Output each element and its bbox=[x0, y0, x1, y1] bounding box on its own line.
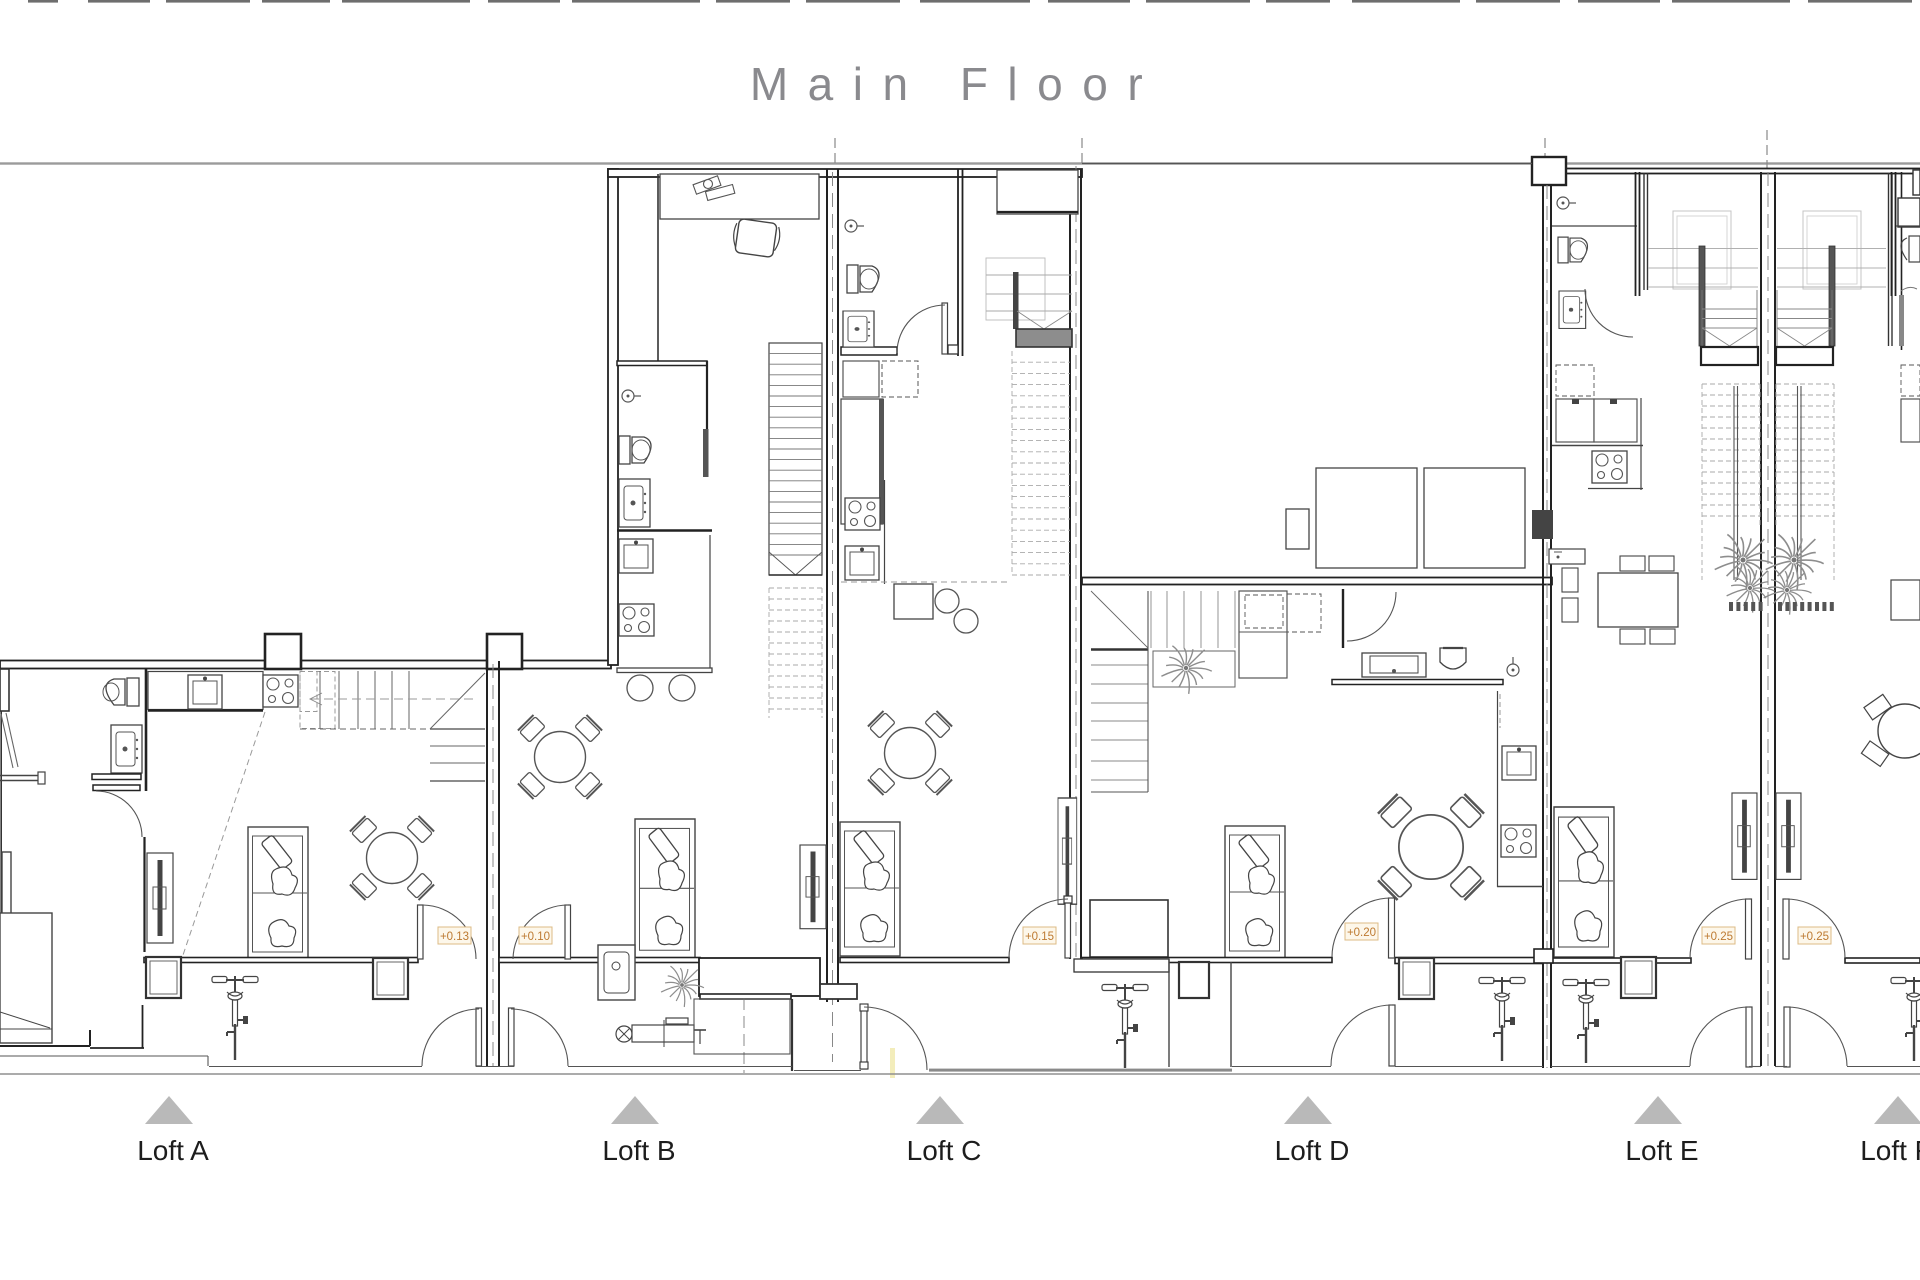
svg-text:+0.25: +0.25 bbox=[1704, 931, 1733, 943]
svg-text:Loft C: Loft C bbox=[907, 1135, 982, 1166]
svg-text:+0.10: +0.10 bbox=[521, 931, 550, 943]
svg-text:+0.15: +0.15 bbox=[1025, 931, 1054, 943]
svg-text:+0.25: +0.25 bbox=[1800, 931, 1829, 943]
svg-text:Loft A: Loft A bbox=[137, 1135, 209, 1166]
svg-text:Loft B: Loft B bbox=[602, 1135, 675, 1166]
svg-text:Loft F: Loft F bbox=[1860, 1135, 1920, 1166]
svg-text:+0.13: +0.13 bbox=[440, 931, 469, 943]
svg-text:Loft E: Loft E bbox=[1625, 1135, 1698, 1166]
svg-text:Main Floor: Main Floor bbox=[750, 58, 1162, 110]
svg-text:Loft D: Loft D bbox=[1275, 1135, 1350, 1166]
svg-text:+0.20: +0.20 bbox=[1347, 927, 1376, 939]
